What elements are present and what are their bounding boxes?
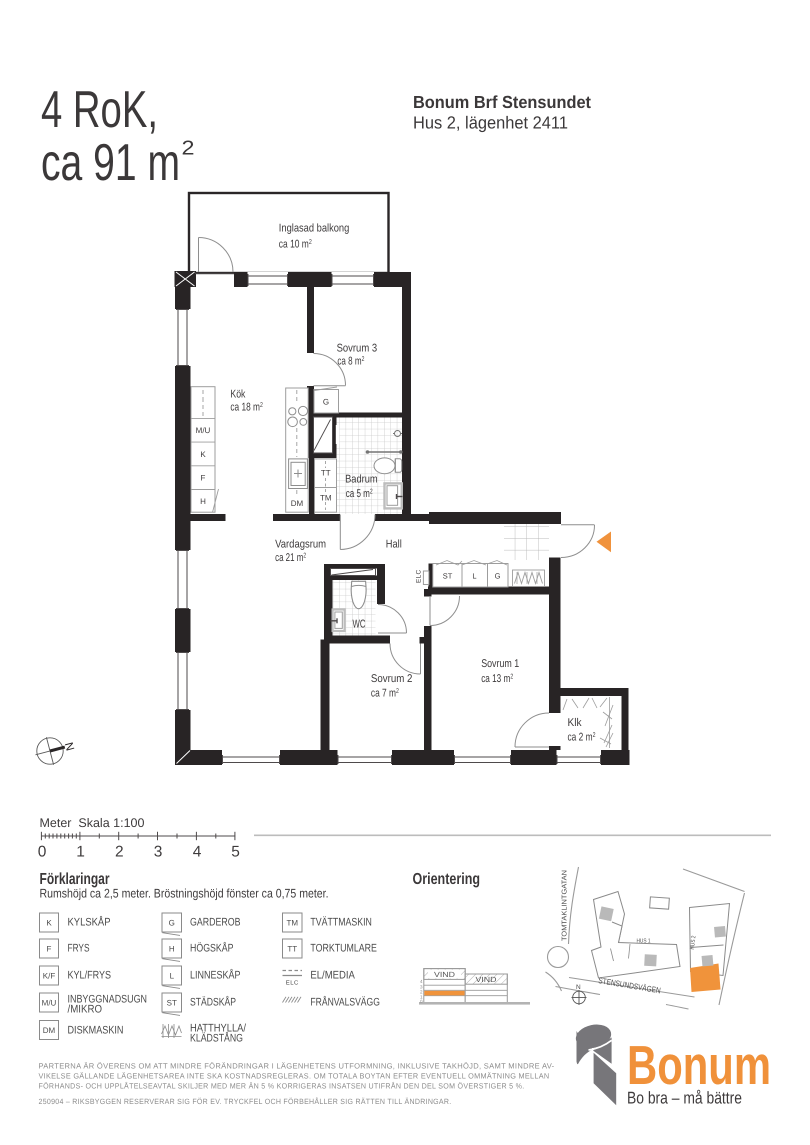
svg-text:/MIKRO: /MIKRO — [68, 1004, 103, 1016]
svg-text:VIND: VIND — [434, 970, 456, 979]
svg-text:DM: DM — [291, 499, 304, 508]
svg-text:K/F: K/F — [43, 972, 56, 981]
svg-text:Bonum: Bonum — [627, 1034, 771, 1096]
svg-text:Vardagsrum: Vardagsrum — [275, 539, 326, 551]
svg-text:ca 5 m2: ca 5 m2 — [346, 488, 373, 500]
svg-text:M/U: M/U — [196, 426, 211, 435]
svg-text:5: 5 — [231, 844, 240, 861]
svg-text:L: L — [472, 572, 476, 581]
svg-text:ELC: ELC — [286, 980, 299, 987]
svg-text:H: H — [200, 497, 206, 506]
svg-text:F: F — [201, 474, 206, 483]
svg-text:4 RoK,: 4 RoK, — [41, 81, 158, 139]
svg-text:F: F — [47, 945, 52, 954]
svg-text:FRÅNVALSVÄGG: FRÅNVALSVÄGG — [310, 996, 380, 1009]
svg-text:H: H — [169, 945, 175, 954]
svg-text:4: 4 — [193, 844, 202, 861]
svg-text:G: G — [323, 398, 329, 407]
svg-text:ca 8 m2: ca 8 m2 — [337, 356, 364, 368]
svg-text:TM: TM — [287, 919, 299, 928]
svg-text:Sovrum 1: Sovrum 1 — [481, 658, 519, 670]
svg-text:FRYS: FRYS — [68, 943, 90, 955]
svg-text:Klk: Klk — [568, 717, 582, 729]
svg-text:TOMTAKLINTGATAN: TOMTAKLINTGATAN — [562, 870, 569, 941]
svg-text:2: 2 — [182, 138, 195, 160]
svg-text:Bonum Brf Stensundet: Bonum Brf Stensundet — [413, 92, 591, 112]
svg-text:3: 3 — [154, 844, 163, 861]
svg-text:K: K — [46, 919, 52, 928]
svg-text:ST: ST — [167, 999, 177, 1008]
svg-text:2: 2 — [115, 844, 124, 861]
svg-text:0: 0 — [38, 844, 47, 861]
svg-text:VIND: VIND — [476, 975, 498, 984]
svg-text:250904 – RIKSBYGGEN RESERVERAR: 250904 – RIKSBYGGEN RESERVERAR SIG FÖR E… — [39, 1097, 452, 1106]
svg-text:0: 0 — [420, 999, 423, 1004]
svg-text:Inglasad balkong: Inglasad balkong — [279, 223, 350, 235]
svg-text:Badrum: Badrum — [345, 474, 378, 486]
svg-text:Hall: Hall — [386, 539, 402, 551]
svg-text:ca 21 m2: ca 21 m2 — [275, 552, 306, 564]
svg-text:Sovrum 3: Sovrum 3 — [337, 342, 378, 354]
svg-text:PARTERNA ÄR ÖVERENS OM ATT MIN: PARTERNA ÄR ÖVERENS OM ATT MINDRE FÖRÄND… — [39, 1062, 555, 1071]
svg-text:1: 1 — [76, 844, 85, 861]
svg-text:KLÄDSTÅNG: KLÄDSTÅNG — [190, 1032, 243, 1045]
svg-text:Bo bra – må bättre: Bo bra – må bättre — [627, 1089, 742, 1108]
svg-text:TVÄTTMASKIN: TVÄTTMASKIN — [310, 916, 372, 929]
svg-text:Rumshöjd ca 2,5 meter. Bröstni: Rumshöjd ca 2,5 meter. Bröstningshöjd fö… — [40, 887, 329, 901]
svg-text:ca 13 m2: ca 13 m2 — [481, 673, 513, 685]
svg-text:EL/MEDIA: EL/MEDIA — [310, 970, 355, 982]
svg-text:ca 2 m2: ca 2 m2 — [568, 732, 596, 744]
svg-text:Kök: Kök — [230, 389, 245, 401]
svg-text:HUS 1: HUS 1 — [637, 938, 651, 945]
svg-text:GARDEROB: GARDEROB — [190, 917, 241, 929]
svg-text:Sovrum 2: Sovrum 2 — [371, 673, 413, 685]
svg-text:M/U: M/U — [42, 999, 57, 1008]
svg-text:ca 7 m2: ca 7 m2 — [371, 688, 399, 700]
svg-text:Meter Skala 1:100: Meter Skala 1:100 — [40, 816, 145, 830]
svg-text:4: 4 — [420, 979, 423, 984]
svg-text:ELC: ELC — [416, 569, 423, 583]
svg-text:ST: ST — [443, 572, 453, 581]
svg-text:ca 91 m: ca 91 m — [41, 134, 180, 192]
svg-text:KYLSKÅP: KYLSKÅP — [68, 916, 111, 929]
svg-text:ca 18 m2: ca 18 m2 — [230, 402, 263, 414]
svg-text:TT: TT — [321, 469, 331, 478]
svg-text:TM: TM — [320, 494, 332, 503]
svg-text:Hus 2, lägenhet 2411: Hus 2, lägenhet 2411 — [413, 113, 568, 133]
svg-text:L: L — [170, 972, 175, 981]
svg-text:N: N — [576, 984, 581, 991]
svg-text:TORKTUMLARE: TORKTUMLARE — [310, 943, 377, 955]
svg-text:FÖRHANDS- OCH UPPLÅTELSEAVTAL: FÖRHANDS- OCH UPPLÅTELSEAVTAL SKILJER ME… — [39, 1082, 525, 1091]
svg-text:Förklaringar: Förklaringar — [40, 871, 110, 888]
svg-text:TT: TT — [287, 945, 297, 954]
svg-text:WC: WC — [353, 619, 366, 631]
svg-text:DM: DM — [43, 1026, 56, 1035]
svg-text:HÖGSKÅP: HÖGSKÅP — [190, 942, 234, 955]
svg-text:G: G — [495, 572, 501, 581]
svg-text:G: G — [169, 919, 175, 928]
svg-text:K: K — [200, 450, 206, 459]
svg-text:ca 10 m2: ca 10 m2 — [279, 239, 312, 251]
svg-text:KYL/FRYS: KYL/FRYS — [68, 970, 112, 982]
svg-text:STÄDSKÅP: STÄDSKÅP — [190, 996, 236, 1009]
svg-text:LINNESKÅP: LINNESKÅP — [190, 969, 241, 982]
svg-text:VIKELSE GÄLLANDE LÄGENHETSAREA: VIKELSE GÄLLANDE LÄGENHETSAREA INTE SKA … — [39, 1072, 550, 1081]
svg-text:DISKMASKIN: DISKMASKIN — [68, 1025, 124, 1037]
svg-text:Orientering: Orientering — [413, 871, 481, 888]
